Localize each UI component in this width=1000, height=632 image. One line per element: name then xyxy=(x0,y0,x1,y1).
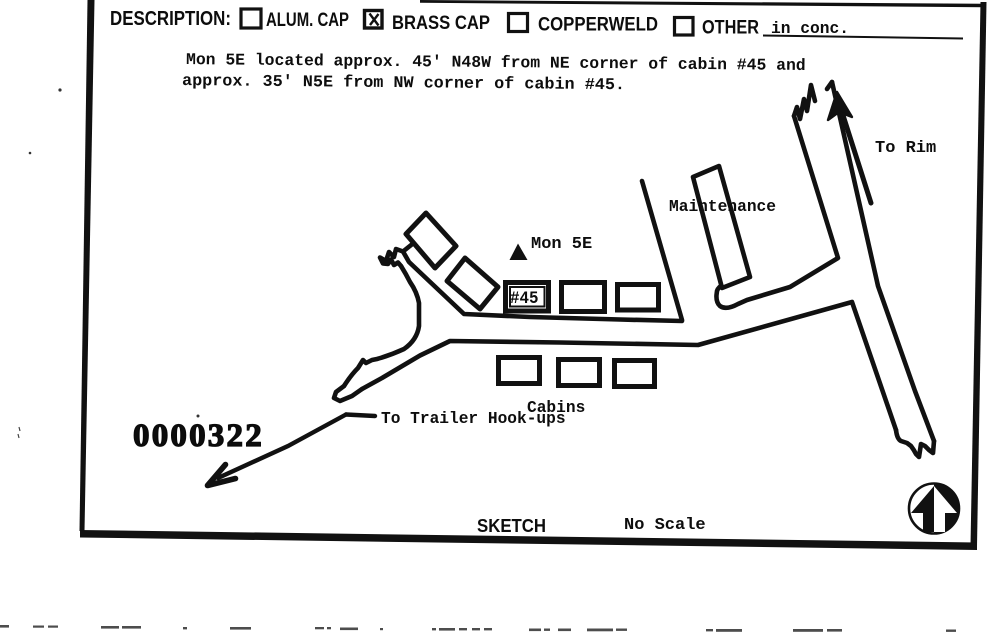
svg-text:COPPERWELD: COPPERWELD xyxy=(538,15,658,36)
svg-text:in conc.: in conc. xyxy=(771,20,849,39)
svg-text:No Scale: No Scale xyxy=(624,516,706,535)
svg-text:DESCRIPTION:: DESCRIPTION: xyxy=(110,7,231,30)
svg-text:Mon 5E: Mon 5E xyxy=(531,235,592,254)
svg-text:0000322: 0000322 xyxy=(133,418,264,454)
svg-text:OTHER: OTHER xyxy=(702,18,759,39)
svg-text:To Trailer Hook-ups: To Trailer Hook-ups xyxy=(381,410,566,428)
svg-text:SKETCH: SKETCH xyxy=(477,515,546,536)
svg-text:ALUM. CAP: ALUM. CAP xyxy=(266,10,349,31)
svg-text:Maintenance: Maintenance xyxy=(669,198,776,217)
svg-text:BRASS CAP: BRASS CAP xyxy=(392,13,490,34)
svg-text:#45: #45 xyxy=(510,289,539,309)
svg-text:To Rim: To Rim xyxy=(875,139,936,158)
